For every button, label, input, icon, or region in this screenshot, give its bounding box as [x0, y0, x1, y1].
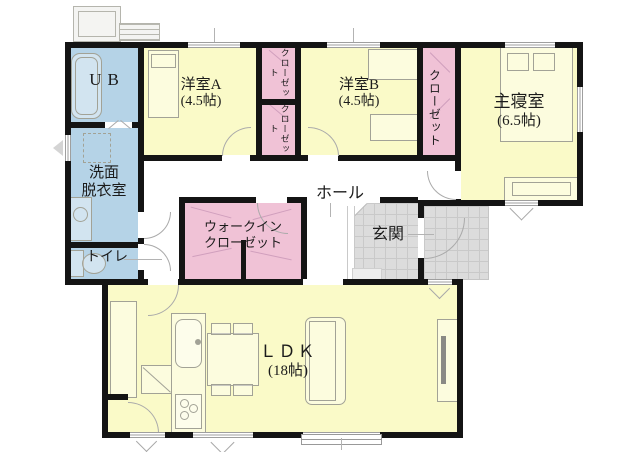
window — [65, 135, 71, 161]
room-name: 洋室B — [299, 76, 419, 94]
window — [505, 42, 555, 48]
tick-line — [353, 28, 354, 42]
window — [188, 42, 240, 48]
wall-segment — [65, 242, 144, 248]
master-pillow-left — [507, 53, 529, 71]
stove-burner — [180, 399, 189, 408]
label-washroom: 洗面 脱衣室 — [70, 164, 138, 200]
wall-segment — [138, 155, 461, 161]
window — [327, 42, 380, 48]
room-name: クローゼット — [186, 235, 300, 251]
sink-faucet — [195, 339, 201, 345]
wall-segment — [301, 203, 307, 279]
label-western-a: 洋室A (4.5帖) — [145, 76, 257, 111]
label-closet-upper: クローゼット — [268, 47, 290, 99]
label-toilet: トイレ — [78, 250, 136, 267]
wall-segment — [102, 394, 128, 400]
wall-segment — [457, 285, 463, 432]
master-pillow-right — [533, 53, 555, 71]
label-western-b: 洋室B (4.5帖) — [299, 76, 419, 111]
room-name: 主寝室 — [462, 92, 576, 112]
room-size: (4.5帖) — [299, 94, 419, 111]
master-dresser-inner — [512, 182, 571, 196]
wall-segment — [179, 203, 185, 279]
tick-line — [330, 203, 331, 217]
wall-segment — [455, 42, 461, 155]
dining-chair — [233, 384, 253, 396]
room-name: 脱衣室 — [70, 182, 138, 200]
label-walk-in-closet: ウォークイン クローゼット — [186, 219, 300, 250]
room-name: 洋室A — [145, 76, 257, 94]
door-arc-washroom — [144, 212, 171, 239]
label-ldk: ＬＤＫ (18帖) — [238, 342, 338, 380]
room-name: ＬＤＫ — [238, 342, 338, 362]
label-closet-master: クローゼット — [427, 66, 441, 150]
wall-segment — [102, 285, 108, 438]
stove — [175, 394, 202, 429]
window — [577, 87, 583, 132]
label-closet-lower: クローゼット — [268, 103, 290, 155]
shelf-western-b — [370, 114, 418, 141]
room-size: (18帖) — [238, 362, 338, 380]
door-arc-master — [427, 171, 456, 200]
label-hall: ホール — [308, 184, 372, 203]
dining-chair — [233, 323, 253, 335]
stove-burner — [180, 411, 189, 420]
window-vent-mark — [53, 140, 63, 156]
tv — [441, 336, 446, 384]
tick-line — [214, 28, 215, 42]
room-name: ウォークイン — [186, 219, 300, 235]
tick-line — [341, 438, 342, 450]
passage-hall-ldk — [303, 279, 343, 285]
room-size: (4.5帖) — [145, 94, 257, 111]
vanity-basin — [73, 207, 88, 222]
label-master-bedroom: 主寝室 (6.5帖) — [462, 92, 576, 130]
room-size: (6.5帖) — [462, 112, 576, 130]
outdoor-unit-inner — [78, 11, 116, 37]
wall-segment — [418, 200, 583, 206]
washing-machine-space — [83, 133, 111, 163]
floor-plan: UB 洋室A (4.5帖) クローゼット クローゼット 洋室B (4.5帖) ク… — [0, 0, 640, 452]
label-entrance: 玄関 — [366, 225, 410, 244]
wall-segment — [65, 279, 463, 285]
pillow-western-a — [151, 54, 176, 68]
label-ub: UB — [78, 70, 136, 90]
room-name: 洗面 — [70, 164, 138, 182]
dining-chair — [211, 384, 231, 396]
wall-segment — [380, 197, 418, 203]
door-arc-toilet — [144, 244, 171, 271]
dining-chair — [211, 323, 231, 335]
stove-burner — [189, 404, 198, 413]
kitchen-cupboard — [110, 301, 137, 398]
outdoor-ac-unit — [119, 23, 160, 41]
leader-line-entrance — [408, 234, 434, 235]
